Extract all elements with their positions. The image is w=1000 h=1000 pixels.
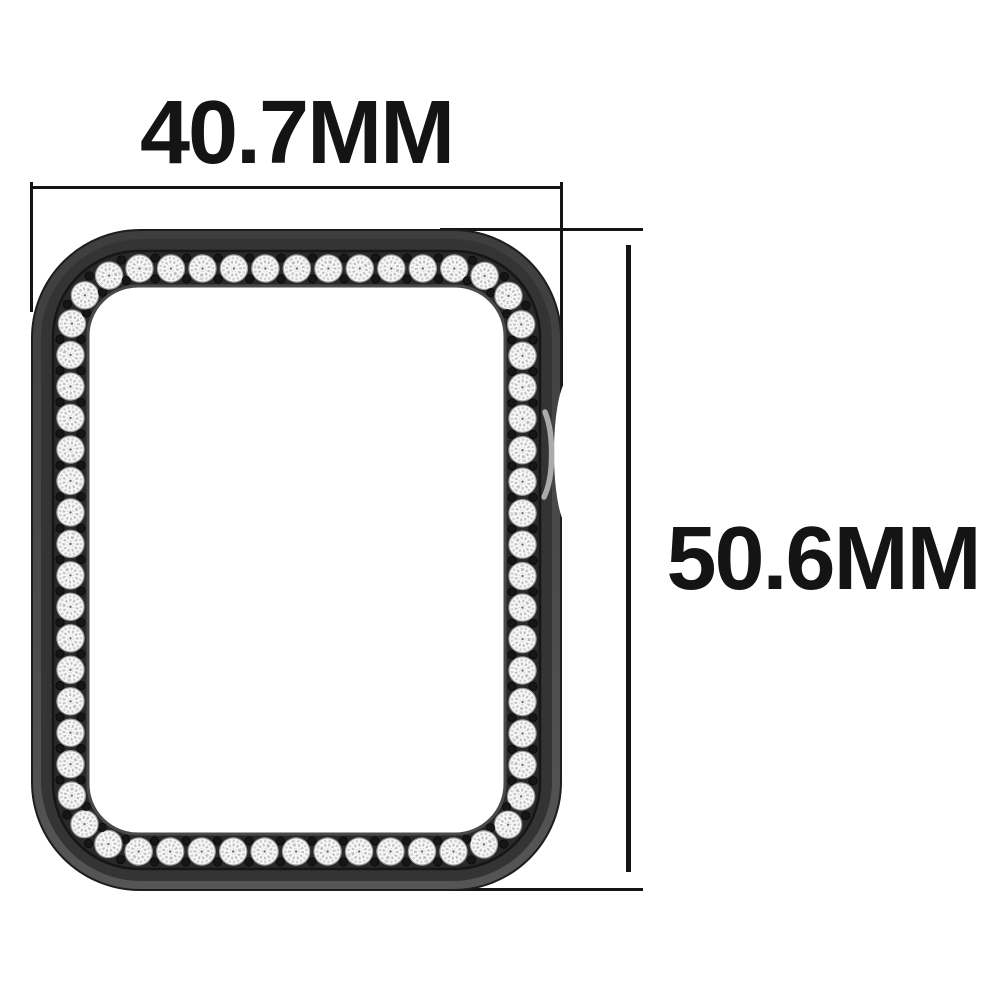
bezel-hole-dot: [529, 430, 537, 438]
bezel-hole-dot: [508, 588, 516, 596]
bezel-hole-dot: [529, 462, 537, 470]
bezel-hole-dot: [85, 272, 93, 280]
bezel-hole-dot: [56, 335, 64, 343]
bezel-hole-dot: [529, 619, 537, 627]
bezel-hole-dot: [77, 744, 85, 752]
bezel-hole-dot: [84, 839, 92, 847]
bezel-hole-dot: [245, 837, 253, 845]
bezel-hole-dot: [56, 618, 64, 626]
crown-notch-cutout: [554, 378, 586, 528]
bezel-hole-dot: [63, 300, 71, 308]
bezel-hole-dot: [529, 682, 537, 690]
rhinestone: [509, 625, 537, 653]
bezel-hole-dot: [403, 275, 411, 283]
bezel-hole-dot: [245, 275, 253, 283]
bezel-hole-dot: [98, 823, 106, 831]
bezel-hole-dot: [529, 714, 537, 722]
bezel-hole-dot: [529, 556, 537, 564]
screen-opening: [88, 286, 505, 834]
bezel-hole-dot: [77, 398, 85, 406]
bezel-hole-dot: [182, 837, 190, 845]
bezel-hole-dot: [403, 254, 411, 262]
bezel-hole-dot: [502, 803, 510, 811]
bezel-hole-dot: [402, 837, 410, 845]
bezel-hole-dot: [529, 493, 537, 501]
bezel-hole-dot: [183, 254, 191, 262]
bezel-hole-dot: [122, 276, 130, 284]
bezel-hole-dot: [529, 525, 537, 533]
bezel-hole-dot: [77, 367, 85, 375]
bezel-hole-dot: [308, 254, 316, 262]
bezel-hole-dot: [56, 681, 64, 689]
watch-case-graphic: [0, 0, 1000, 1000]
bezel-hole-dot: [529, 651, 537, 659]
bezel-hole-dot: [214, 275, 222, 283]
bezel-hole-dot: [340, 254, 348, 262]
bezel-hole-dot: [508, 651, 516, 659]
bezel-hole-dot: [508, 462, 516, 470]
bezel-hole-dot: [402, 858, 410, 866]
bezel-hole-dot: [463, 276, 471, 284]
bezel-hole-dot: [56, 461, 64, 469]
bezel-hole-dot: [371, 275, 379, 283]
bezel-hole-dot: [56, 430, 64, 438]
rhinestone: [56, 719, 84, 747]
bezel-hole-dot: [183, 275, 191, 283]
bezel-hole-dot: [508, 682, 516, 690]
bezel-hole-dot: [277, 275, 285, 283]
bezel-hole-dot: [77, 524, 85, 532]
bezel-hole-dot: [529, 399, 537, 407]
bezel-hole-dot: [340, 275, 348, 283]
rhinestone: [508, 562, 537, 591]
bezel-hole-dot: [467, 856, 475, 864]
bezel-hole-dot: [500, 272, 508, 280]
bezel-hole-dot: [151, 275, 159, 283]
bezel-hole-dot: [468, 256, 476, 264]
bezel-hole-dot: [213, 837, 221, 845]
bezel-hole-dot: [56, 776, 64, 784]
bezel-hole-dot: [508, 367, 516, 375]
bezel-hole-dot: [56, 367, 64, 375]
bezel-hole-dot: [308, 837, 316, 845]
bezel-hole-dot: [150, 837, 158, 845]
bezel-hole-dot: [522, 811, 530, 819]
bezel-hole-dot: [77, 492, 85, 500]
bezel-hole-dot: [508, 525, 516, 533]
bezel-hole-dot: [77, 776, 85, 784]
bezel-hole-dot: [276, 858, 284, 866]
bezel-hole-dot: [276, 837, 284, 845]
bezel-hole-dot: [245, 858, 253, 866]
bezel-hole-dot: [56, 492, 64, 500]
bezel-hole-dot: [77, 650, 85, 658]
bezel-hole-dot: [77, 430, 85, 438]
bezel-hole-dot: [245, 254, 253, 262]
bezel-hole-dot: [56, 713, 64, 721]
bezel-hole-dot: [508, 556, 516, 564]
bezel-hole-dot: [529, 745, 537, 753]
bezel-hole-dot: [182, 858, 190, 866]
bezel-hole-dot: [56, 587, 64, 595]
bezel-hole-dot: [277, 254, 285, 262]
bezel-hole-dot: [529, 367, 537, 375]
product-dimension-diagram: 40.7MM 50.6MM: [0, 0, 1000, 1000]
bezel-hole-dot: [339, 858, 347, 866]
bezel-hole-dot: [150, 858, 158, 866]
bezel-hole-dot: [308, 858, 316, 866]
bezel-hole-dot: [214, 254, 222, 262]
bezel-hole-dot: [116, 856, 124, 864]
bezel-hole-dot: [56, 524, 64, 532]
bezel-hole-dot: [371, 837, 379, 845]
bezel-hole-dot: [56, 744, 64, 752]
bezel-hole-dot: [117, 256, 125, 264]
bezel-hole-dot: [56, 650, 64, 658]
bezel-hole-dot: [508, 493, 516, 501]
bezel-hole-dot: [213, 858, 221, 866]
rhinestone: [58, 782, 86, 810]
bezel-hole-dot: [529, 336, 537, 344]
bezel-hole-dot: [371, 858, 379, 866]
bezel-hole-dot: [77, 618, 85, 626]
bezel-hole-dot: [77, 587, 85, 595]
bezel-hole-dot: [63, 811, 71, 819]
bezel-hole-dot: [522, 301, 530, 309]
bezel-hole-dot: [434, 858, 442, 866]
bezel-hole-dot: [121, 835, 129, 843]
bezel-hole-dot: [508, 336, 516, 344]
bezel-hole-dot: [77, 681, 85, 689]
bezel-hole-dot: [77, 713, 85, 721]
bezel-hole-dot: [508, 714, 516, 722]
bezel-hole-dot: [508, 430, 516, 438]
bezel-hole-dot: [56, 555, 64, 563]
bezel-hole-dot: [82, 309, 90, 317]
bezel-hole-dot: [434, 837, 442, 845]
bezel-hole-dot: [500, 840, 508, 848]
bezel-hole-dot: [529, 777, 537, 785]
bezel-hole-dot: [529, 588, 537, 596]
bezel-hole-dot: [339, 837, 347, 845]
bezel-hole-dot: [56, 398, 64, 406]
bezel-hole-dot: [508, 619, 516, 627]
bezel-hole-dot: [308, 275, 316, 283]
bezel-hole-dot: [487, 288, 495, 296]
bezel-hole-dot: [508, 399, 516, 407]
bezel-hole-dot: [508, 745, 516, 753]
bezel-hole-dot: [434, 275, 442, 283]
bezel-hole-dot: [151, 254, 159, 262]
bezel-hole-dot: [371, 254, 379, 262]
bezel-hole-dot: [77, 461, 85, 469]
bezel-hole-dot: [434, 254, 442, 262]
bezel-hole-dot: [77, 555, 85, 563]
